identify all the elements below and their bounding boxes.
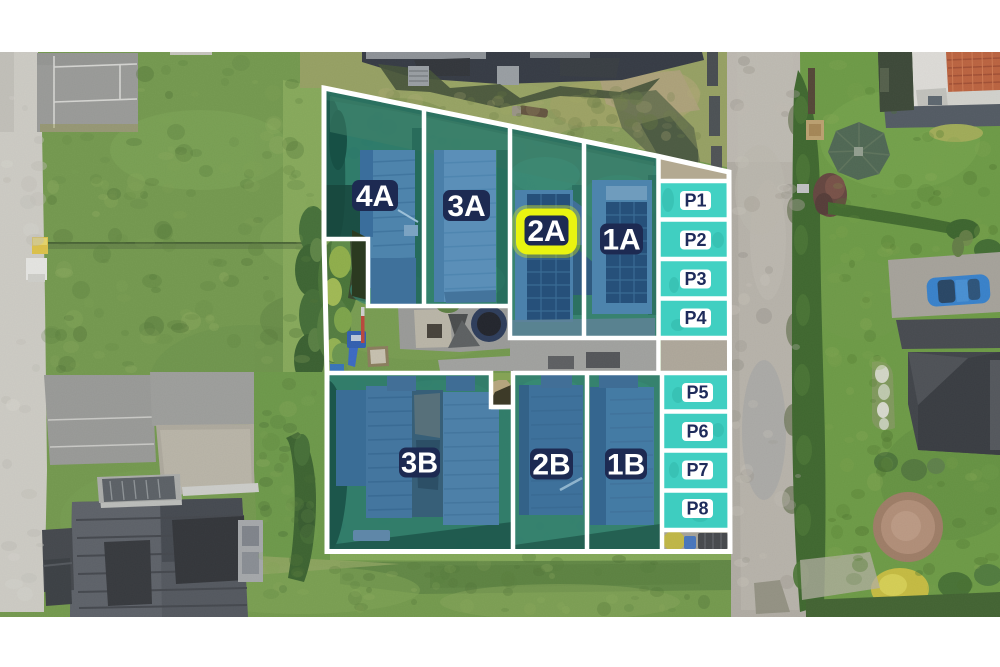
svg-text:P4: P4 bbox=[684, 308, 706, 328]
svg-text:P5: P5 bbox=[686, 383, 708, 403]
svg-text:P2: P2 bbox=[684, 230, 706, 250]
svg-text:P1: P1 bbox=[684, 191, 706, 211]
svg-text:3A: 3A bbox=[447, 190, 485, 223]
svg-text:1B: 1B bbox=[607, 449, 645, 482]
svg-text:2B: 2B bbox=[532, 449, 570, 482]
svg-text:P7: P7 bbox=[686, 460, 708, 480]
svg-text:3B: 3B bbox=[401, 448, 438, 480]
svg-text:2A: 2A bbox=[527, 215, 565, 248]
svg-text:1A: 1A bbox=[602, 224, 640, 257]
svg-text:P8: P8 bbox=[686, 499, 708, 519]
svg-text:P6: P6 bbox=[686, 422, 708, 442]
svg-text:4A: 4A bbox=[356, 180, 394, 213]
svg-text:P3: P3 bbox=[684, 269, 706, 289]
